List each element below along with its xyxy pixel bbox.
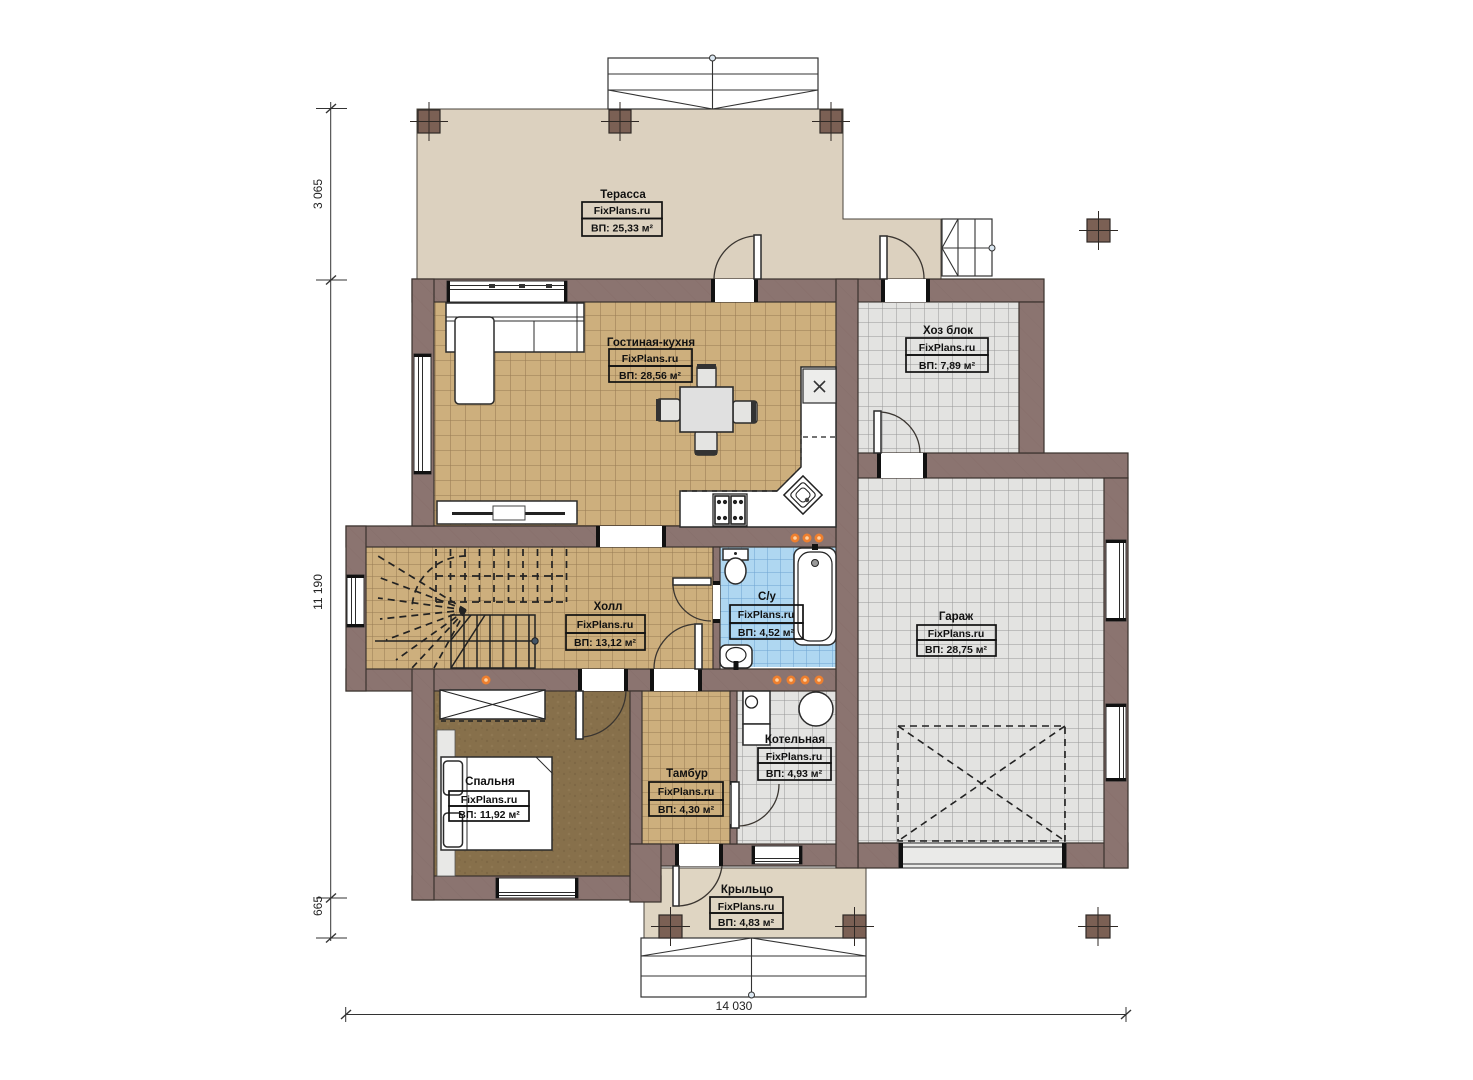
svg-text:ВП: 4,52 м²: ВП: 4,52 м² [738,627,795,639]
svg-text:FixPlans.ru: FixPlans.ru [622,353,679,365]
svg-text:ВП: 4,83 м²: ВП: 4,83 м² [718,917,775,929]
svg-text:11 190: 11 190 [311,574,325,610]
svg-text:ВП: 11,92 м²: ВП: 11,92 м² [458,809,520,821]
svg-text:ВП: 13,12 м²: ВП: 13,12 м² [574,637,637,649]
svg-text:FixPlans.ru: FixPlans.ru [577,619,634,631]
svg-text:Спальня: Спальня [465,776,515,788]
svg-text:FixPlans.ru: FixPlans.ru [718,901,775,913]
svg-text:FixPlans.ru: FixPlans.ru [928,628,985,640]
svg-text:FixPlans.ru: FixPlans.ru [461,794,518,806]
svg-text:Холл: Холл [594,601,623,613]
svg-text:3 065: 3 065 [311,179,325,209]
svg-text:С/у: С/у [758,591,777,603]
svg-text:Хоз блок: Хоз блок [923,325,973,337]
svg-text:ВП: 25,33 м²: ВП: 25,33 м² [591,223,654,235]
svg-text:Гостиная-кухня: Гостиная-кухня [607,337,695,349]
svg-text:FixPlans.ru: FixPlans.ru [919,342,976,354]
svg-text:Гараж: Гараж [939,611,974,623]
svg-text:FixPlans.ru: FixPlans.ru [738,609,795,621]
svg-text:Котельная: Котельная [765,734,825,746]
svg-text:ВП: 28,75 м²: ВП: 28,75 м² [925,644,988,656]
svg-text:Тамбур: Тамбур [666,768,708,780]
svg-text:ВП: 7,89 м²: ВП: 7,89 м² [919,360,976,372]
svg-text:665: 665 [311,896,325,916]
svg-text:FixPlans.ru: FixPlans.ru [594,205,651,217]
svg-text:FixPlans.ru: FixPlans.ru [766,751,823,763]
svg-text:FixPlans.ru: FixPlans.ru [658,786,715,798]
svg-text:ВП: 4,93 м²: ВП: 4,93 м² [766,768,823,780]
svg-text:ВП: 28,56 м²: ВП: 28,56 м² [619,370,682,382]
svg-text:Терасса: Терасса [600,189,646,201]
svg-text:Крыльцо: Крыльцо [721,884,773,896]
svg-text:ВП: 4,30 м²: ВП: 4,30 м² [658,804,715,816]
svg-text:14 030: 14 030 [716,999,753,1013]
